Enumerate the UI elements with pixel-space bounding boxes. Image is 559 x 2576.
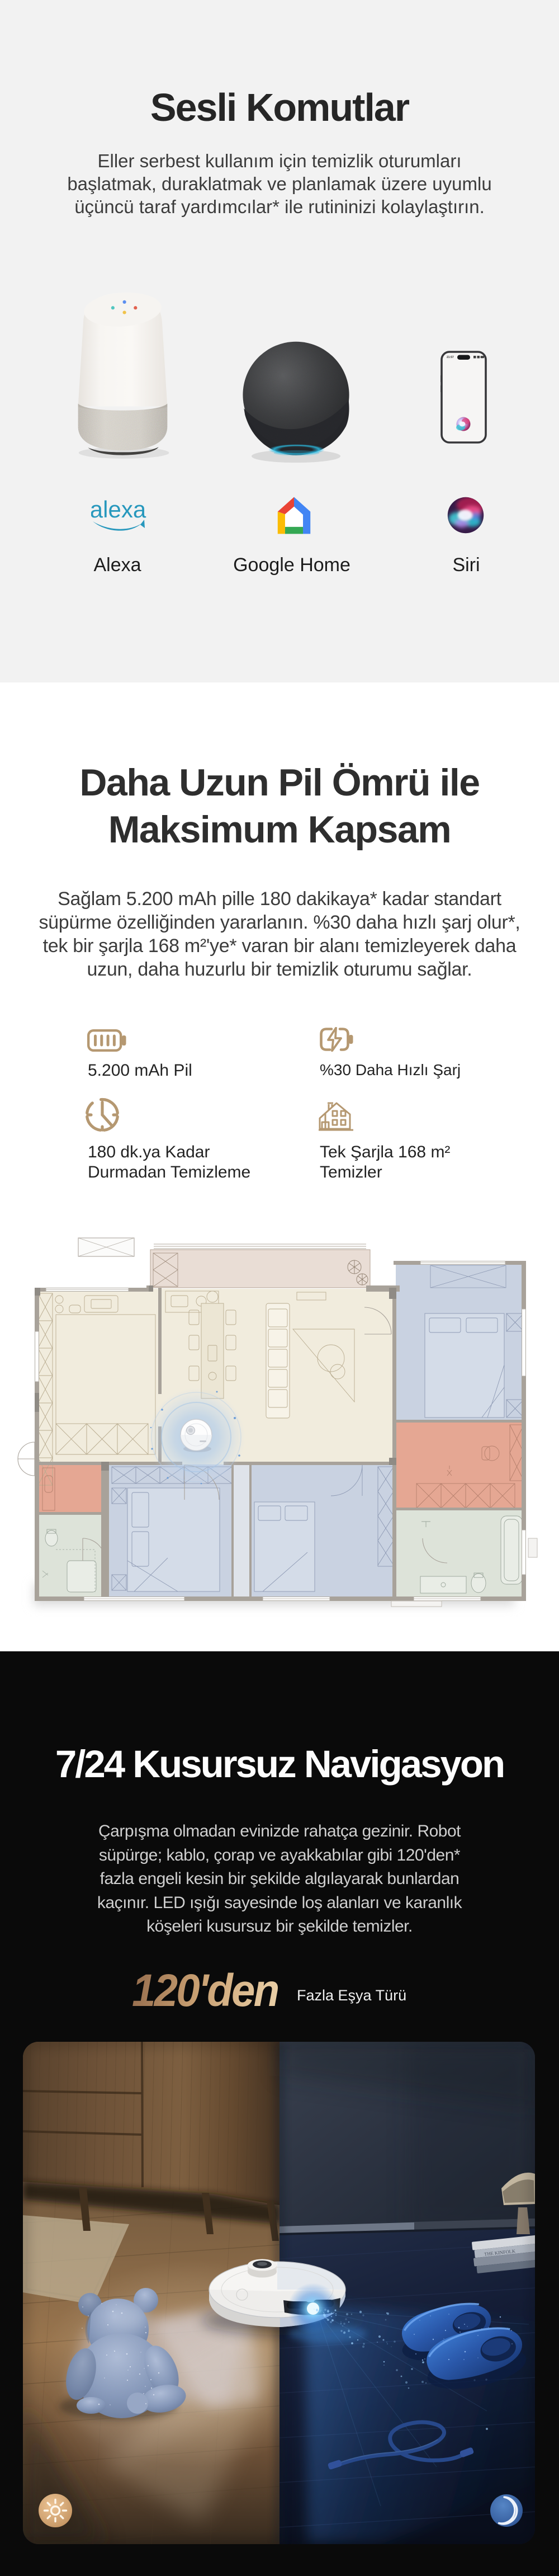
svg-text:alexa: alexa [91,496,146,522]
svg-text:21:57: 21:57 [447,356,454,359]
